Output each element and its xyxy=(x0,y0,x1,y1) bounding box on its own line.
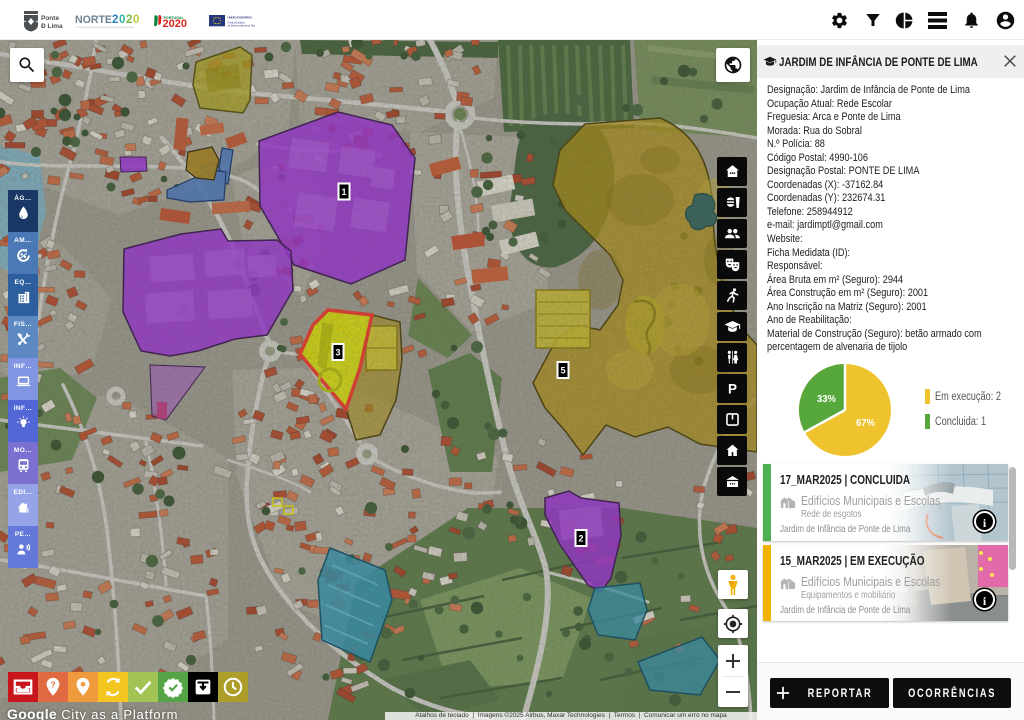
svg-text:2: 2 xyxy=(112,14,118,26)
svg-text:2: 2 xyxy=(126,14,132,26)
svg-text:1: 1 xyxy=(341,187,346,197)
svg-text:2020: 2020 xyxy=(163,18,187,28)
svg-text:P: P xyxy=(728,381,737,396)
svg-text:de Desenvolvimento Regional: de Desenvolvimento Regional xyxy=(228,24,256,27)
svg-text:Ð Lima: Ð Lima xyxy=(41,23,63,30)
svg-text:2: 2 xyxy=(578,534,583,544)
svg-text:UNIÃO EUROPEIA: UNIÃO EUROPEIA xyxy=(228,15,252,19)
svg-text:Ponte: Ponte xyxy=(41,15,59,22)
svg-text:5: 5 xyxy=(560,366,565,376)
svg-text:67%: 67% xyxy=(856,417,876,429)
svg-text:0: 0 xyxy=(119,14,125,26)
svg-text:0: 0 xyxy=(133,14,139,26)
svg-text:33%: 33% xyxy=(817,393,837,405)
svg-text:3: 3 xyxy=(335,348,340,358)
svg-text:NORTE: NORTE xyxy=(75,14,112,26)
svg-text:?: ? xyxy=(50,680,55,690)
